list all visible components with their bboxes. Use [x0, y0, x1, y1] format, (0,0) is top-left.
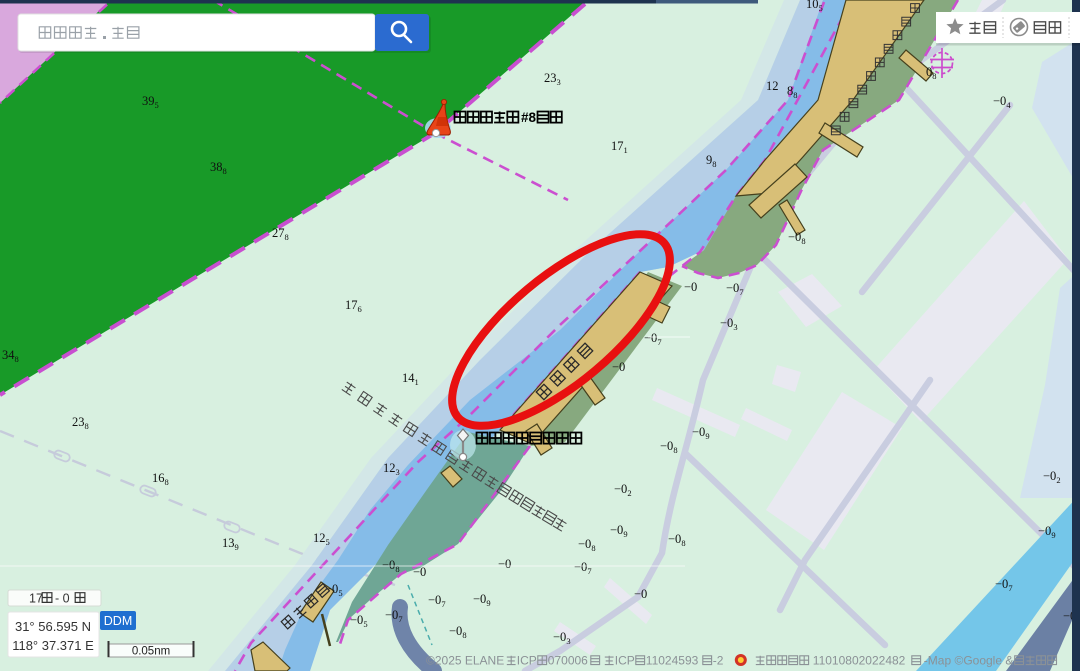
svg-text:-2: -2 [713, 654, 724, 668]
svg-text:ICP: ICP [517, 654, 537, 668]
svg-text:11024593: 11024593 [646, 654, 699, 668]
svg-text:−0: −0 [684, 280, 697, 294]
svg-text:0.05nm: 0.05nm [132, 646, 170, 658]
svg-text:118° 37.371 E: 118° 37.371 E [12, 638, 94, 653]
svg-text:17: 17 [29, 592, 43, 606]
svg-text:- 0: - 0 [55, 592, 70, 606]
svg-text:070006: 070006 [548, 654, 588, 668]
svg-text:−0: −0 [634, 587, 647, 601]
svg-text:12: 12 [766, 79, 779, 93]
svg-text:DDM: DDM [104, 614, 132, 628]
svg-text:©2025 ELANE: ©2025 ELANE [426, 654, 504, 668]
svg-text:11010802022482: 11010802022482 [813, 654, 906, 668]
svg-text:−0: −0 [413, 565, 426, 579]
svg-text:−0: −0 [612, 360, 625, 374]
svg-text:-Map ©Google &: -Map ©Google & [924, 654, 1014, 668]
svg-text:31° 56.595 N: 31° 56.595 N [15, 619, 91, 634]
svg-text:ICP: ICP [615, 654, 635, 668]
svg-text:#8: #8 [521, 110, 537, 125]
svg-text:−0: −0 [498, 557, 511, 571]
